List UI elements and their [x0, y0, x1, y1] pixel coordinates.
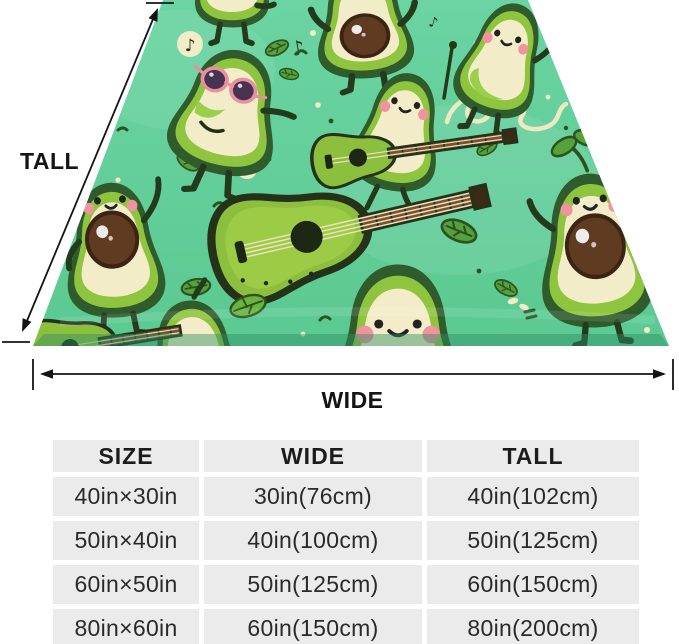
blanket-preview: ♪ ♪ ♪: [0, 0, 679, 430]
blanket-illustration: ♪ ♪ ♪: [0, 0, 679, 430]
cell-tall: 50in(125cm): [427, 521, 639, 560]
table-row: 50in×40in 40in(100cm) 50in(125cm): [53, 521, 639, 560]
cell-wide: 40in(100cm): [204, 521, 422, 560]
cell-tall: 60in(150cm): [427, 565, 639, 604]
cell-size: 40in×30in: [53, 477, 199, 516]
table-row: 60in×50in 50in(125cm) 60in(150cm): [53, 565, 639, 604]
cell-tall: 80in(200cm): [427, 609, 639, 644]
cell-tall: 40in(102cm): [427, 477, 639, 516]
product-size-infographic: ♪ ♪ ♪: [0, 0, 679, 644]
music-note-icon: ♪: [177, 31, 203, 57]
wide-arrow: [33, 359, 673, 390]
size-chart-table: SIZE WIDE TALL 40in×30in 30in(76cm) 40in…: [48, 435, 644, 644]
header-wide: WIDE: [204, 440, 422, 472]
table-header-row: SIZE WIDE TALL: [53, 440, 639, 472]
cell-wide: 50in(125cm): [204, 565, 422, 604]
blanket-fold-shadow: [33, 334, 669, 346]
svg-text:♪: ♪: [185, 36, 196, 56]
cell-size: 60in×50in: [53, 565, 199, 604]
header-size: SIZE: [53, 440, 199, 472]
cell-wide: 60in(150cm): [204, 609, 422, 644]
cell-size: 50in×40in: [53, 521, 199, 560]
cell-wide: 30in(76cm): [204, 477, 422, 516]
blanket-pattern: ♪ ♪ ♪: [0, 0, 679, 430]
wide-dimension-label: WIDE: [40, 387, 665, 414]
tall-dimension-label: TALL: [20, 148, 79, 175]
table-row: 40in×30in 30in(76cm) 40in(102cm): [53, 477, 639, 516]
header-tall: TALL: [427, 440, 639, 472]
cell-size: 80in×60in: [53, 609, 199, 644]
table-row: 80in×60in 60in(150cm) 80in(200cm): [53, 609, 639, 644]
